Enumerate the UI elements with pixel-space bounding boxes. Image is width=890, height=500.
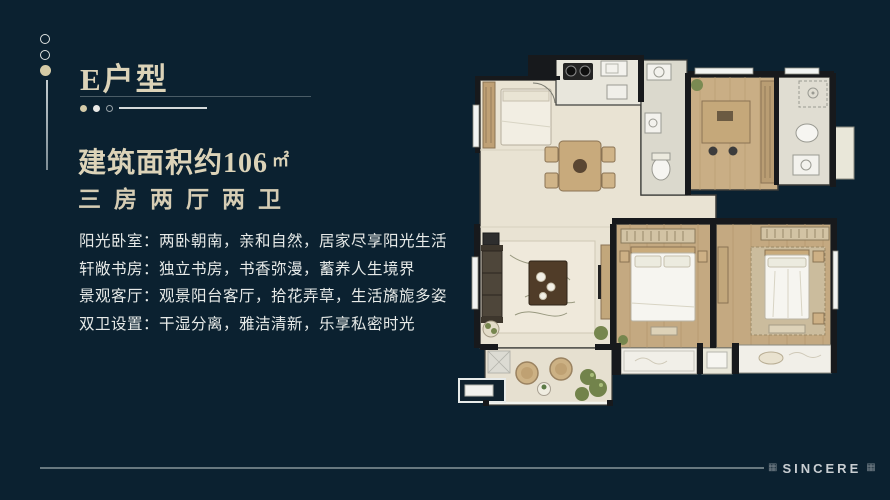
- room-layout: 三房两厅两卫: [78, 180, 294, 214]
- wardrobe: [761, 227, 829, 240]
- tv-icon: [598, 265, 601, 299]
- building-area: 建筑面积约106㎡: [78, 141, 289, 181]
- bench: [651, 327, 677, 335]
- feature-line: 阳光卧室：两卧朝南，亲和自然，居家尽享阳光生活: [79, 228, 439, 256]
- feature-list: 阳光卧室：两卧朝南，亲和自然，居家尽享阳光生活 轩敞书房：独立书房，书香弥漫，蓄…: [79, 228, 439, 338]
- feature-line: 轩敞书房：独立书房，书香弥漫，蓄养人生境界: [79, 256, 439, 284]
- deco-circle-1: [40, 34, 50, 44]
- room-guest-bath: [641, 60, 687, 195]
- deco-circle-2: [40, 50, 50, 60]
- fridge-icon: [607, 85, 627, 99]
- wardrobe: [621, 229, 695, 243]
- room-bedroom2: [616, 224, 712, 348]
- brand-name: SINCERE: [782, 462, 861, 475]
- side-cabinet: [483, 233, 499, 245]
- toilet-icon: [652, 158, 670, 180]
- desk: [702, 101, 750, 143]
- toilet-icon: [796, 124, 818, 142]
- floorplan: [455, 55, 860, 430]
- title-divider: [80, 96, 311, 97]
- brand-logo: ▦ SINCERE ▦: [768, 459, 876, 477]
- coffee-table: [529, 261, 567, 305]
- area-unit: ㎡: [272, 151, 289, 170]
- cushion: [759, 352, 783, 364]
- sofa: [482, 251, 502, 317]
- feature-line: 景观客厅：观景阳台客厅，拾花弄草，生活旖旎多姿: [79, 283, 439, 311]
- tv-console: [601, 245, 611, 319]
- accent-dot-gold: [80, 105, 87, 112]
- room-study: [483, 82, 551, 148]
- deco-vertical-line: [46, 80, 48, 170]
- plant-icon: [594, 326, 608, 340]
- brand-seal-right-icon: ▦: [866, 463, 875, 473]
- brand-seal-left-icon: ▦: [768, 463, 777, 473]
- accent-dot-ring: [106, 105, 113, 112]
- bath-sink-icon: [793, 155, 819, 175]
- dresser: [718, 247, 728, 303]
- room-kitchen: [556, 57, 641, 105]
- area-value: 106: [223, 148, 268, 179]
- bench: [769, 325, 805, 333]
- wardrobe: [761, 81, 776, 183]
- plant-icon: [691, 79, 703, 91]
- living-room-furniture: [481, 233, 611, 340]
- sink-icon: [601, 61, 627, 76]
- deco-circle-gold: [40, 65, 51, 76]
- area-label: 建筑面积约: [78, 148, 223, 179]
- room-master-bath: [778, 77, 830, 185]
- room-study2: [690, 77, 778, 190]
- wardrobe: [483, 82, 495, 148]
- footer-line: [40, 467, 764, 469]
- feature-line: 双卫设置：干湿分离，雅洁清新，乐享私密时光: [79, 311, 439, 339]
- room-master-bedroom: [716, 224, 831, 348]
- washer-icon: [647, 64, 671, 80]
- unit-title: E户型: [80, 54, 169, 99]
- accent-dot-white: [93, 105, 100, 112]
- bath-sink-icon: [645, 113, 661, 133]
- real-estate-slide: E户型 建筑面积约106㎡ 三房两厅两卫 阳光卧室：两卧朝南，亲和自然，居家尽享…: [0, 0, 890, 500]
- accent-short-line: [119, 107, 207, 109]
